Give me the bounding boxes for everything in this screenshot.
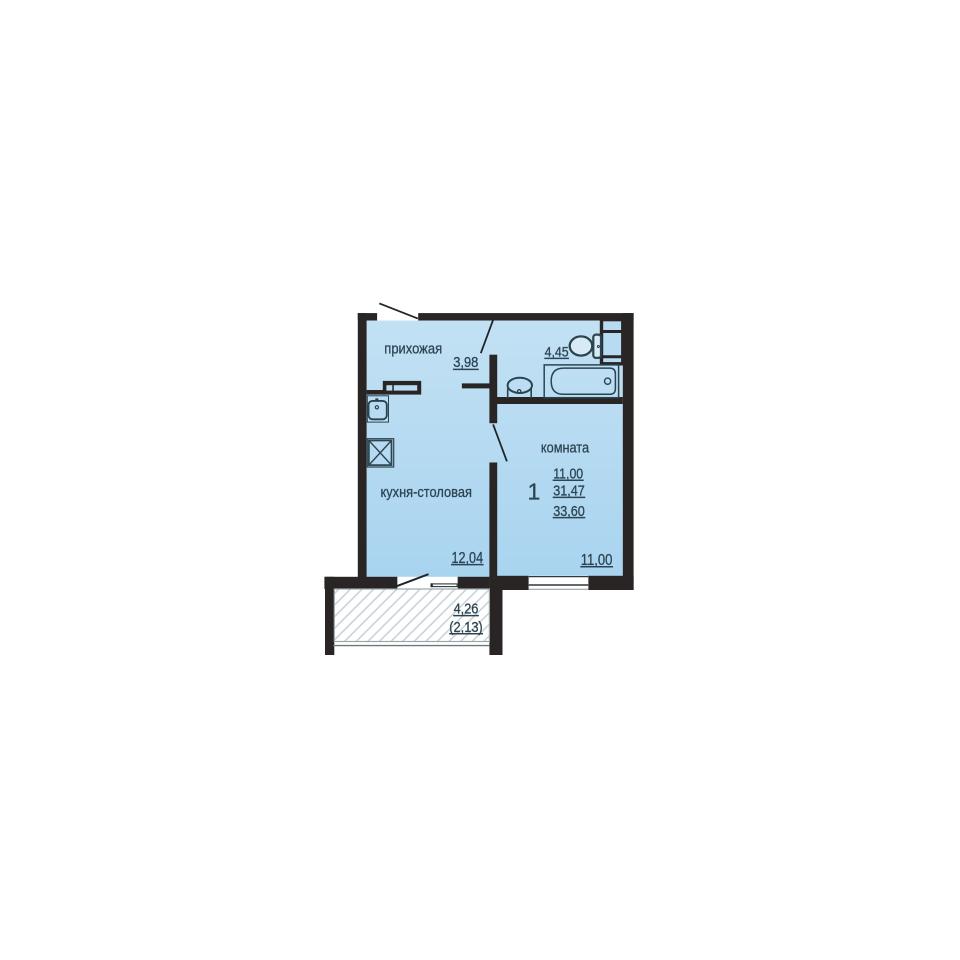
svg-text:кухня-столовая: кухня-столовая <box>381 484 472 501</box>
svg-text:4,45: 4,45 <box>545 344 569 360</box>
svg-text:1: 1 <box>528 478 541 504</box>
svg-text:прихожая: прихожая <box>384 341 442 358</box>
svg-text:комната: комната <box>541 440 590 457</box>
